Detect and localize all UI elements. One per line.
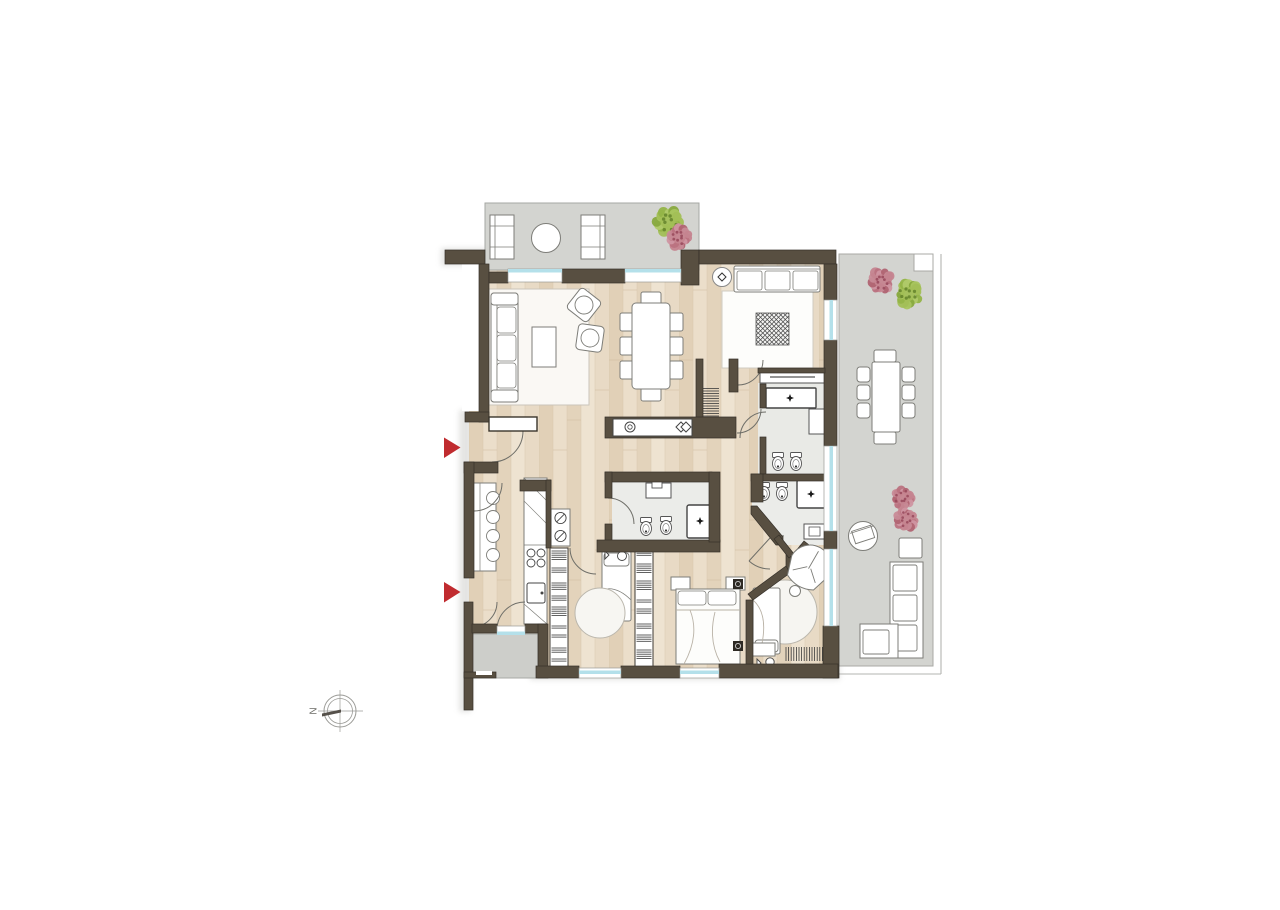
svg-text:N: N: [309, 707, 320, 714]
